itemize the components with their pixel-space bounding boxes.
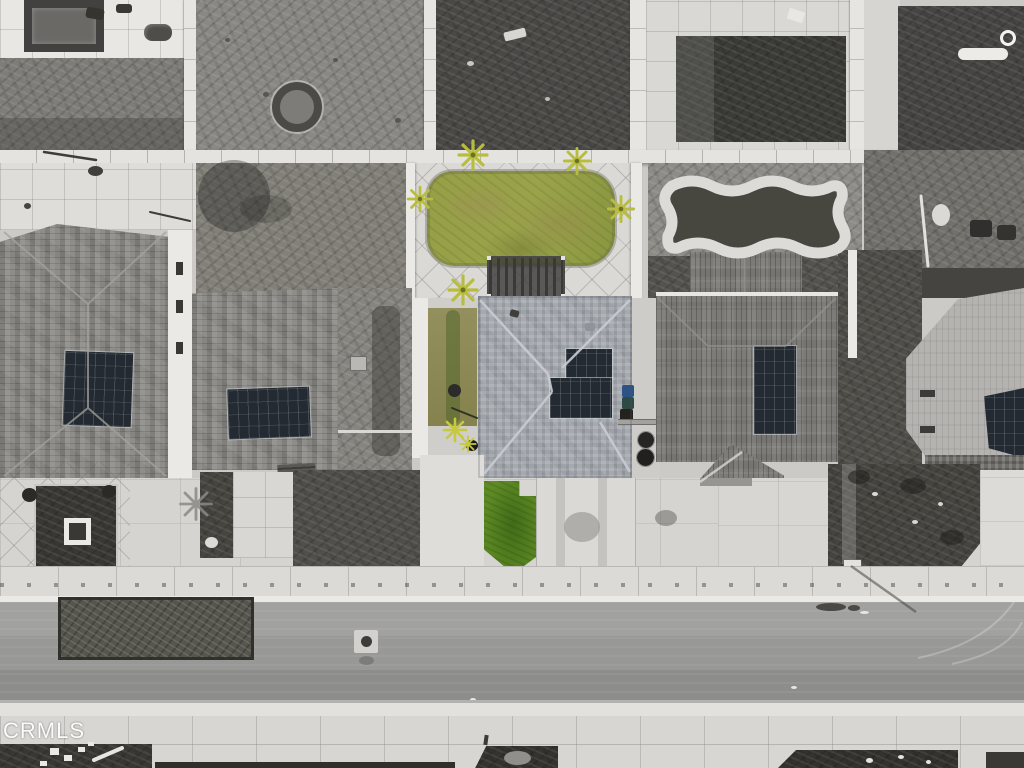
yard-object bbox=[24, 203, 31, 209]
ac-unit bbox=[350, 356, 367, 371]
paver bbox=[78, 747, 85, 752]
watermark: CRMLS bbox=[3, 718, 85, 744]
far-right-driveway bbox=[980, 470, 1024, 566]
far-curb-strip bbox=[0, 703, 1024, 716]
wall-stub bbox=[848, 250, 857, 358]
driveway-stain bbox=[564, 512, 600, 542]
yard-debris bbox=[545, 97, 550, 101]
trash-barrel bbox=[638, 432, 654, 448]
trash-bin-green bbox=[622, 397, 634, 409]
block-wall bbox=[184, 0, 196, 152]
street-debris bbox=[816, 603, 846, 611]
paver bbox=[88, 742, 94, 746]
opposite-front-yard bbox=[986, 752, 1024, 768]
pergola-post bbox=[487, 256, 491, 260]
shrub bbox=[22, 488, 37, 502]
window bbox=[920, 390, 935, 397]
window bbox=[176, 300, 183, 313]
solar-panel bbox=[984, 388, 1024, 458]
street-mark bbox=[860, 611, 869, 614]
rock bbox=[395, 118, 401, 123]
dirt-patch bbox=[240, 195, 292, 223]
yard-equipment bbox=[970, 220, 992, 237]
window bbox=[176, 342, 183, 354]
rear-patio-5 bbox=[864, 0, 900, 152]
planter-frame bbox=[64, 518, 91, 545]
neighbor-driveway bbox=[718, 478, 830, 570]
pergola-post bbox=[561, 256, 565, 260]
house-second-roof bbox=[192, 288, 338, 470]
window bbox=[920, 426, 935, 433]
rear-turf-4-light bbox=[676, 36, 714, 142]
street-debris bbox=[848, 605, 860, 611]
solar-panel-subject bbox=[566, 349, 612, 378]
street-patch bbox=[58, 597, 254, 660]
solar-panel bbox=[754, 346, 796, 434]
yard-equipment bbox=[997, 225, 1016, 240]
subject-side-walkway bbox=[412, 298, 428, 458]
solar-panel bbox=[63, 351, 134, 427]
subject-backyard-wall-right bbox=[631, 163, 642, 298]
expansion-joint-ticks bbox=[0, 583, 1024, 587]
rear-dirt-yard-2 bbox=[196, 0, 424, 152]
bbq-grill bbox=[144, 24, 172, 41]
weed-line bbox=[446, 310, 460, 424]
solar-panel-subject bbox=[550, 378, 612, 418]
debris bbox=[898, 755, 904, 759]
house-right-roof bbox=[656, 296, 838, 462]
fire-pit bbox=[272, 82, 322, 132]
yard-object bbox=[932, 204, 950, 226]
paver bbox=[50, 748, 59, 755]
debris bbox=[912, 520, 918, 524]
debris bbox=[872, 492, 878, 496]
debris bbox=[866, 758, 873, 763]
planter-pot bbox=[466, 440, 478, 451]
subject-back-lawn bbox=[427, 171, 615, 266]
paver bbox=[40, 761, 47, 766]
block-wall bbox=[850, 0, 864, 152]
paver bbox=[64, 755, 72, 761]
yard-debris bbox=[467, 61, 474, 66]
trash-barrel bbox=[637, 449, 654, 466]
patio-object bbox=[130, 40, 136, 45]
opposite-front-yard bbox=[0, 744, 152, 768]
house-right-rear-gable bbox=[690, 252, 802, 296]
block-wall bbox=[630, 0, 646, 152]
shrub bbox=[102, 485, 116, 498]
aerial-photo: CRMLS bbox=[0, 0, 1024, 768]
debris bbox=[938, 502, 943, 506]
patio-furniture bbox=[116, 4, 132, 13]
block-wall bbox=[424, 0, 436, 152]
window bbox=[176, 262, 183, 275]
rock bbox=[263, 92, 269, 97]
front-dead-lawn bbox=[293, 470, 420, 568]
manhole-lid bbox=[361, 636, 372, 647]
subject-side-yard bbox=[428, 298, 477, 308]
street-mark bbox=[791, 686, 797, 689]
porch-shadow bbox=[700, 478, 752, 486]
rear-dirt-yard-3 bbox=[436, 0, 630, 152]
subject-backyard-wall-left bbox=[406, 163, 415, 298]
side-gate bbox=[618, 419, 660, 425]
shrub bbox=[900, 478, 926, 494]
rock bbox=[225, 38, 230, 42]
weed-streak bbox=[372, 306, 400, 456]
front-walkway bbox=[233, 472, 293, 558]
yard-shade-band bbox=[0, 118, 184, 152]
trash-bin-blue bbox=[622, 385, 634, 397]
pergola bbox=[487, 256, 565, 298]
side-fence bbox=[338, 430, 412, 433]
subject-front-walk-scored bbox=[420, 455, 484, 568]
manhole-shadow bbox=[359, 656, 374, 665]
pavement-mark bbox=[655, 510, 677, 526]
roof-vent bbox=[585, 323, 595, 331]
shrub bbox=[848, 470, 870, 484]
debris bbox=[926, 760, 931, 764]
shrub bbox=[940, 530, 964, 545]
yard-boulder bbox=[504, 751, 531, 765]
rear-turf-5 bbox=[898, 6, 1024, 152]
opposite-yard-strip bbox=[155, 762, 455, 768]
sidewalk bbox=[0, 566, 1024, 598]
yard-object bbox=[88, 166, 103, 176]
backyard-right-neighbor bbox=[648, 163, 862, 258]
rock bbox=[333, 58, 338, 62]
solar-panel bbox=[227, 387, 311, 440]
patio-bench bbox=[958, 48, 1008, 60]
planter-pot bbox=[205, 537, 218, 548]
patio-table bbox=[1000, 30, 1016, 46]
yard-barrel bbox=[448, 384, 461, 397]
